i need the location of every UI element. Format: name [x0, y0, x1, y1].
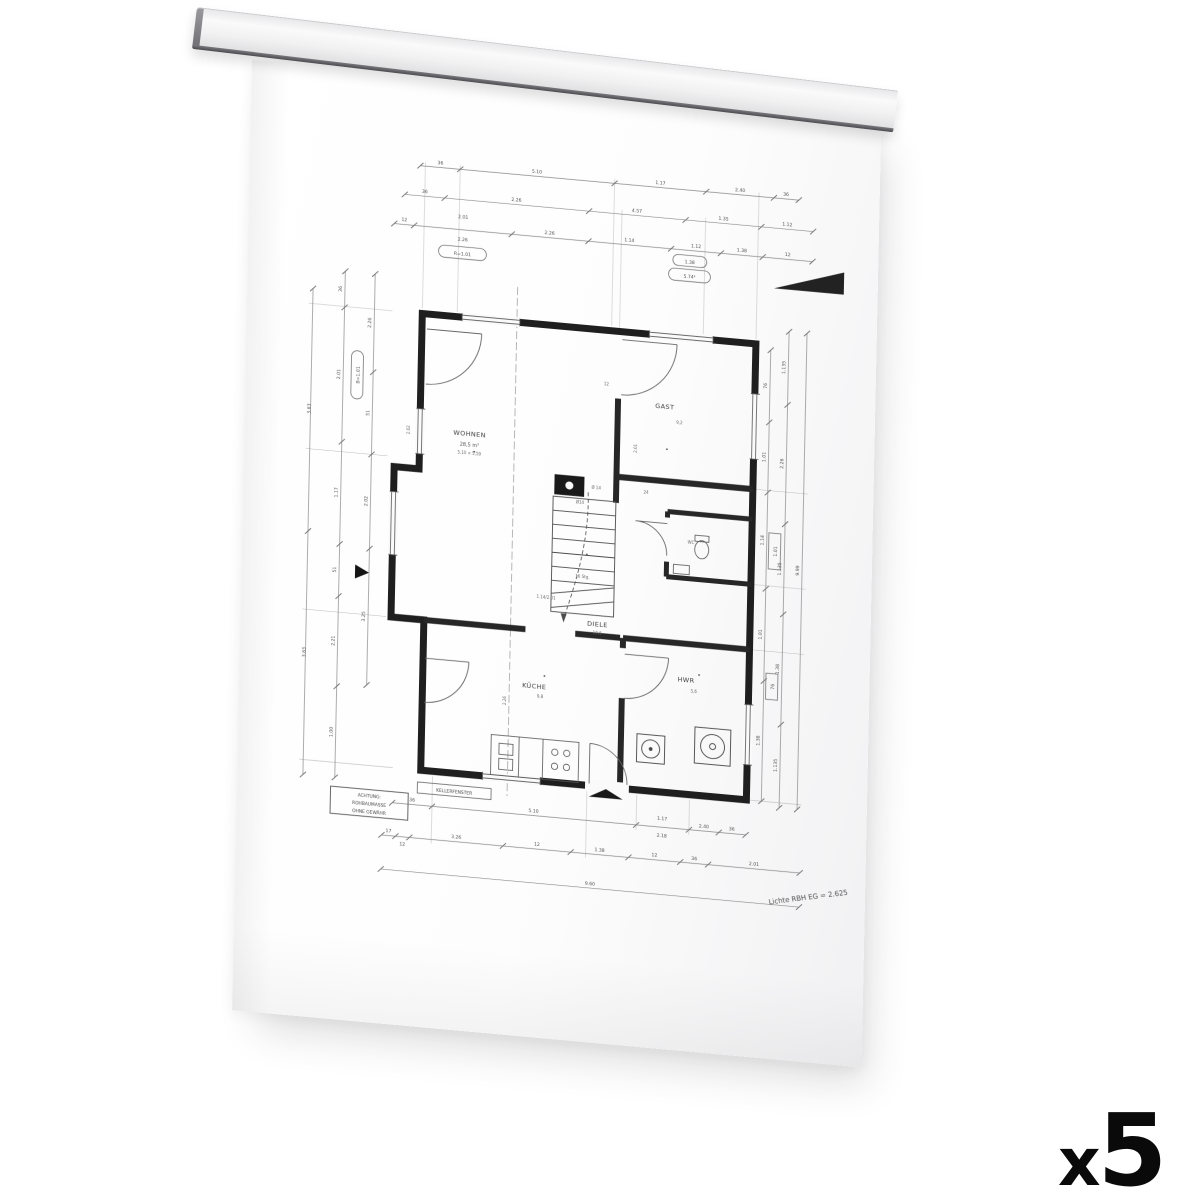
svg-text:1.17: 1.17 [334, 487, 340, 498]
svg-text:5.10: 5.10 [528, 808, 538, 815]
svg-text:1.38: 1.38 [775, 664, 781, 675]
svg-text:2.01: 2.01 [458, 214, 468, 221]
svg-text:1.38: 1.38 [755, 735, 761, 746]
svg-text:2.26: 2.26 [367, 317, 373, 328]
svg-text:5.10: 5.10 [532, 169, 542, 176]
svg-text:76: 76 [770, 684, 776, 690]
svg-text:1.14: 1.14 [760, 535, 766, 546]
height-note: Lichte RBH EG = 2.625 [768, 889, 848, 907]
right-dimension-labels: 76 1.01 1.14 1.01 1.38 1.135 2.26 1.135 … [755, 359, 805, 774]
svg-text:2.21: 2.21 [331, 635, 337, 646]
right-box-label-2: 76 [765, 673, 777, 700]
svg-text:12: 12 [604, 381, 610, 387]
svg-text:24: 24 [643, 489, 649, 495]
svg-text:2.40: 2.40 [699, 824, 709, 831]
stairs [551, 489, 617, 627]
quantity-overlay: x 5 [1058, 1092, 1164, 1200]
svg-text:2.26: 2.26 [511, 197, 521, 204]
svg-text:17: 17 [386, 828, 392, 835]
bottom-dimension-labels: 36 5.10 1.17 2.18 2.40 36 17 12 3.26 12 … [385, 791, 760, 902]
svg-text:9.99: 9.99 [795, 565, 801, 576]
svg-text:1.12: 1.12 [691, 244, 701, 251]
quantity-number: 5 [1098, 1092, 1165, 1200]
svg-text:1.14: 1.14 [624, 237, 634, 244]
rail-end-cap [192, 8, 204, 50]
left-oval-label: B=1.01 [351, 350, 364, 399]
svg-text:2.26: 2.26 [458, 236, 468, 243]
svg-text:3.63: 3.63 [301, 647, 307, 658]
svg-text:3.26: 3.26 [451, 834, 461, 841]
svg-text:12: 12 [534, 842, 540, 849]
svg-text:36: 36 [691, 856, 697, 863]
svg-text:1.01: 1.01 [761, 452, 767, 463]
svg-text:12: 12 [651, 852, 657, 859]
svg-text:3.25: 3.25 [361, 611, 367, 622]
svg-text:36: 36 [729, 826, 735, 833]
exterior-walls [388, 311, 756, 800]
svg-text:4.57: 4.57 [632, 208, 642, 215]
windows [383, 306, 761, 805]
svg-text:R=1.01: R=1.01 [454, 251, 471, 259]
room-wohnen-area: 28,5 m² [460, 441, 480, 449]
room-labels: WOHNEN 28,5 m² 5,10 × 5,59 GAST 9,2 DIEL… [448, 384, 703, 713]
room-hwr-label: HWR [677, 675, 694, 685]
svg-text:2.18: 2.18 [657, 833, 667, 840]
svg-text:76: 76 [763, 383, 769, 389]
svg-text:1.38: 1.38 [594, 847, 604, 854]
window-note-box: KELLERFENSTER [417, 782, 491, 800]
svg-text:2.01: 2.01 [749, 861, 759, 868]
svg-text:2.40: 2.40 [735, 187, 745, 194]
extension-lines [298, 152, 814, 877]
product-photo: 16 Stg. Ø 14 [0, 0, 1200, 1200]
svg-text:3.63: 3.63 [306, 403, 312, 414]
svg-text:Ø14: Ø14 [576, 499, 585, 505]
room-gast-area: 9,2 [676, 420, 683, 426]
floor-plan-drawing: 16 Stg. Ø 14 [239, 113, 874, 1011]
svg-text:36: 36 [422, 189, 428, 196]
svg-text:2.01: 2.01 [633, 443, 638, 453]
svg-text:51: 51 [365, 410, 371, 416]
section-line [507, 287, 518, 796]
interior-annotations: 2.02 Ø14 12 2.01 1.14/2.01 24 2.26 [400, 363, 706, 722]
svg-text:12: 12 [401, 217, 407, 224]
svg-text:2.02: 2.02 [363, 496, 369, 507]
doors [418, 322, 677, 799]
svg-text:36: 36 [338, 286, 344, 292]
room-hwr-area: 5,6 [691, 688, 698, 694]
room-kueche-label: KÜCHE [522, 680, 546, 691]
top-oval-r101: R=1.01 [438, 245, 486, 261]
room-gast-label: GAST [655, 402, 674, 412]
svg-text:1.12: 1.12 [782, 222, 792, 229]
svg-text:36: 36 [409, 797, 415, 804]
svg-text:51: 51 [332, 566, 338, 572]
svg-text:1.00: 1.00 [329, 727, 335, 738]
svg-text:12: 12 [399, 842, 405, 849]
top-dimension-labels: 36 5.10 1.17 2.40 36 36 2.26 4.57 1.35 1… [401, 157, 794, 291]
left-dimension-labels: 3.63 3.63 36 2.01 1.17 51 2.21 1.00 2.26… [300, 283, 375, 740]
room-kueche-area: 9,8 [537, 693, 544, 699]
svg-text:9.60: 9.60 [585, 881, 595, 888]
stair-count-label: 16 Stg. [575, 573, 589, 579]
svg-text:2.26: 2.26 [779, 458, 785, 469]
svg-text:2.26: 2.26 [502, 695, 507, 705]
room-wohnen-label: WOHNEN [453, 429, 486, 440]
dimension-lines [301, 156, 814, 907]
svg-text:1.14/2.01: 1.14/2.01 [536, 594, 556, 601]
svg-text:1.135: 1.135 [773, 758, 779, 772]
utility-fixtures [636, 722, 730, 771]
room-diele-label: DIELE [587, 620, 608, 630]
svg-text:36: 36 [437, 160, 443, 167]
svg-text:2.26: 2.26 [545, 230, 555, 237]
svg-text:ACHTUNG:: ACHTUNG: [358, 793, 381, 801]
floor-plan-sheet: 16 Stg. Ø 14 [232, 60, 881, 1067]
room-wohnen-size: 5,10 × 5,59 [457, 449, 481, 456]
room-wc-label: WC [687, 539, 694, 545]
svg-text:5.74²: 5.74² [683, 273, 695, 280]
svg-text:36: 36 [783, 192, 789, 199]
svg-text:1.38: 1.38 [685, 259, 695, 266]
svg-text:1.135: 1.135 [781, 361, 787, 375]
svg-text:1.01: 1.01 [758, 629, 764, 640]
room-diele-area: 10,6 [593, 630, 602, 636]
svg-text:1.38: 1.38 [737, 248, 747, 255]
slope-marker-triangle [774, 266, 844, 294]
svg-text:ROHBAUMASSE: ROHBAUMASSE [352, 800, 386, 809]
svg-text:12: 12 [785, 252, 791, 259]
chimney-label: Ø 14 [591, 485, 601, 491]
quantity-multiplier: x [1058, 1124, 1098, 1200]
svg-text:1.17: 1.17 [655, 180, 665, 187]
svg-text:1.01: 1.01 [773, 546, 779, 557]
svg-text:1.17: 1.17 [657, 816, 667, 823]
svg-text:2.01: 2.01 [336, 369, 342, 380]
level-marker-triangle [355, 564, 369, 579]
chimney [554, 474, 584, 497]
svg-text:B=1.01: B=1.01 [355, 366, 361, 384]
svg-text:2.02: 2.02 [406, 425, 411, 435]
svg-text:1.35: 1.35 [718, 216, 728, 223]
